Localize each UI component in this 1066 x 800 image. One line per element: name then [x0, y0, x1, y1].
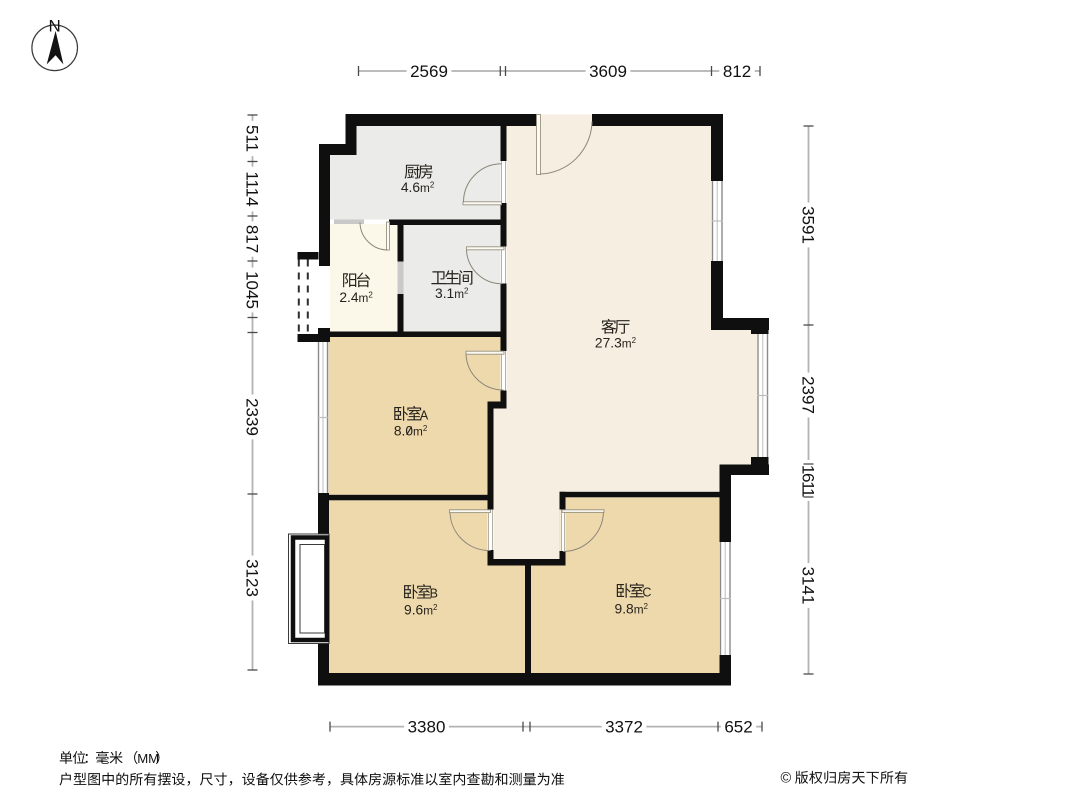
svg-text:1114: 1114 [243, 171, 262, 206]
svg-text:C: C [642, 586, 651, 600]
svg-text:812: 812 [723, 62, 751, 81]
svg-text:3123: 3123 [243, 559, 262, 597]
svg-text:MM: MM [137, 751, 159, 766]
svg-text:3.1m2: 3.1m2 [435, 286, 469, 301]
svg-text:1045: 1045 [243, 271, 262, 309]
svg-text:652: 652 [724, 718, 752, 737]
svg-text:2.4m2: 2.4m2 [339, 290, 373, 305]
svg-text:2397: 2397 [799, 376, 818, 414]
svg-text:3609: 3609 [589, 62, 627, 81]
svg-text:N: N [49, 17, 61, 36]
svg-text:3372: 3372 [605, 718, 643, 737]
svg-text:3380: 3380 [408, 718, 446, 737]
svg-text:9.6m2: 9.6m2 [404, 602, 438, 617]
svg-text:1611: 1611 [799, 465, 818, 497]
svg-text:2569: 2569 [410, 62, 448, 81]
svg-text:9.8m2: 9.8m2 [615, 601, 649, 616]
svg-text:27.3m2: 27.3m2 [595, 335, 637, 350]
svg-text:©: © [781, 771, 792, 787]
svg-text:B: B [430, 587, 438, 601]
svg-text:511: 511 [243, 125, 262, 152]
svg-text:8.0m2: 8.0m2 [394, 424, 428, 439]
svg-text:3141: 3141 [799, 567, 818, 605]
svg-text:3591: 3591 [799, 206, 818, 244]
svg-text:2339: 2339 [243, 398, 262, 436]
svg-text:A: A [420, 409, 429, 423]
svg-text:4.6m2: 4.6m2 [401, 180, 435, 195]
svg-text:817: 817 [243, 225, 262, 253]
